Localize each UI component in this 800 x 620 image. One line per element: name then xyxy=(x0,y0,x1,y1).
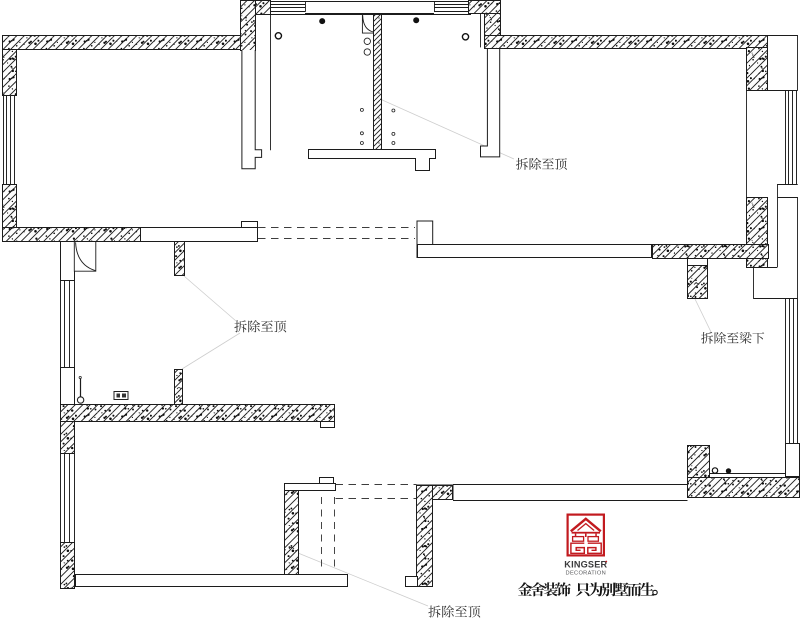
svg-text:KINGSER: KINGSER xyxy=(564,560,607,571)
svg-text:DECORATION: DECORATION xyxy=(566,570,607,576)
